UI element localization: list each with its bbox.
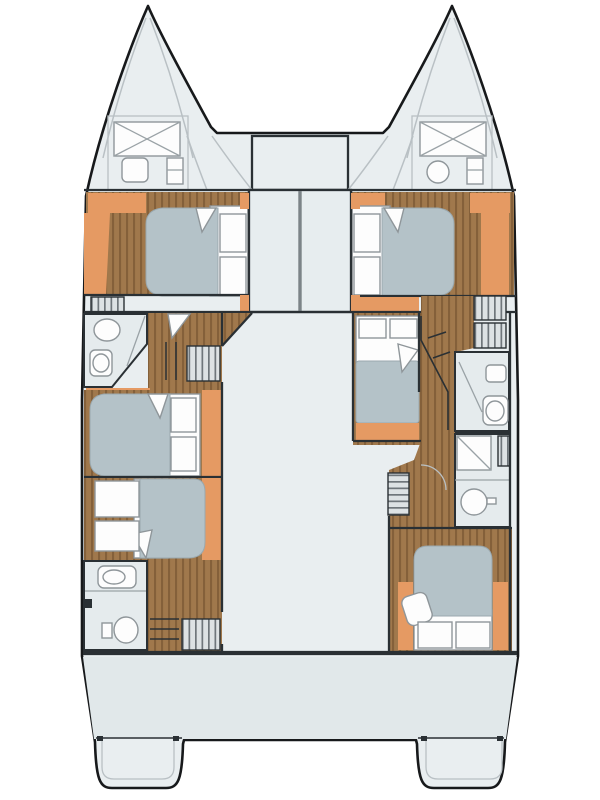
starboard-bow-locker-box bbox=[467, 158, 483, 184]
pillow bbox=[220, 257, 246, 295]
sink bbox=[94, 319, 120, 341]
toilet bbox=[114, 617, 138, 643]
pillow bbox=[359, 319, 386, 338]
pillow bbox=[354, 257, 380, 295]
double-bed bbox=[140, 479, 205, 558]
cockpit-floor bbox=[83, 657, 517, 739]
pillow bbox=[354, 214, 380, 252]
floor-plan-svg: Catamaran yacht deck floor plan, bow up bbox=[0, 0, 600, 800]
starboard-aft-cabin bbox=[389, 516, 512, 652]
toilet-seat bbox=[486, 401, 504, 421]
pillow bbox=[390, 319, 417, 338]
port-bow-sink bbox=[122, 158, 148, 182]
starboard-mid-bathroom bbox=[455, 352, 509, 431]
starboard-bow-sink bbox=[427, 161, 449, 183]
double-bed bbox=[356, 361, 419, 423]
sink bbox=[486, 365, 506, 382]
locker bbox=[474, 296, 506, 320]
port-bow-locker-box bbox=[167, 158, 183, 184]
pillow bbox=[171, 398, 196, 432]
louver-locker bbox=[91, 297, 124, 312]
bed-locker bbox=[456, 622, 490, 648]
floor-plan-page: Catamaran yacht deck floor plan, bow up bbox=[0, 0, 600, 800]
starboard-mid-cabin bbox=[353, 312, 421, 445]
sink-bowl bbox=[103, 570, 125, 584]
locker bbox=[498, 436, 510, 466]
toilet-tank bbox=[102, 623, 112, 638]
locker bbox=[474, 323, 506, 348]
sink-bowl bbox=[461, 489, 487, 515]
pillow bbox=[171, 437, 196, 471]
port-aft-section bbox=[84, 560, 222, 652]
pillow bbox=[220, 214, 246, 252]
bed-locker bbox=[418, 622, 452, 648]
toilet-seat bbox=[93, 354, 109, 372]
starboard-aft-bathroom bbox=[455, 434, 510, 527]
stairs-to-port-hull bbox=[187, 346, 220, 381]
pillow bbox=[95, 521, 139, 551]
stairs-to-cockpit bbox=[182, 619, 220, 650]
salon-front bbox=[240, 190, 360, 312]
forward-starboard-cabin bbox=[351, 190, 516, 312]
forward-port-cabin bbox=[84, 190, 249, 312]
port-mid-section bbox=[84, 313, 222, 401]
faucet bbox=[487, 498, 496, 504]
stairs-to-starboard-hull bbox=[388, 473, 409, 515]
pillow bbox=[95, 481, 139, 517]
port-mid-cabin bbox=[84, 390, 222, 478]
